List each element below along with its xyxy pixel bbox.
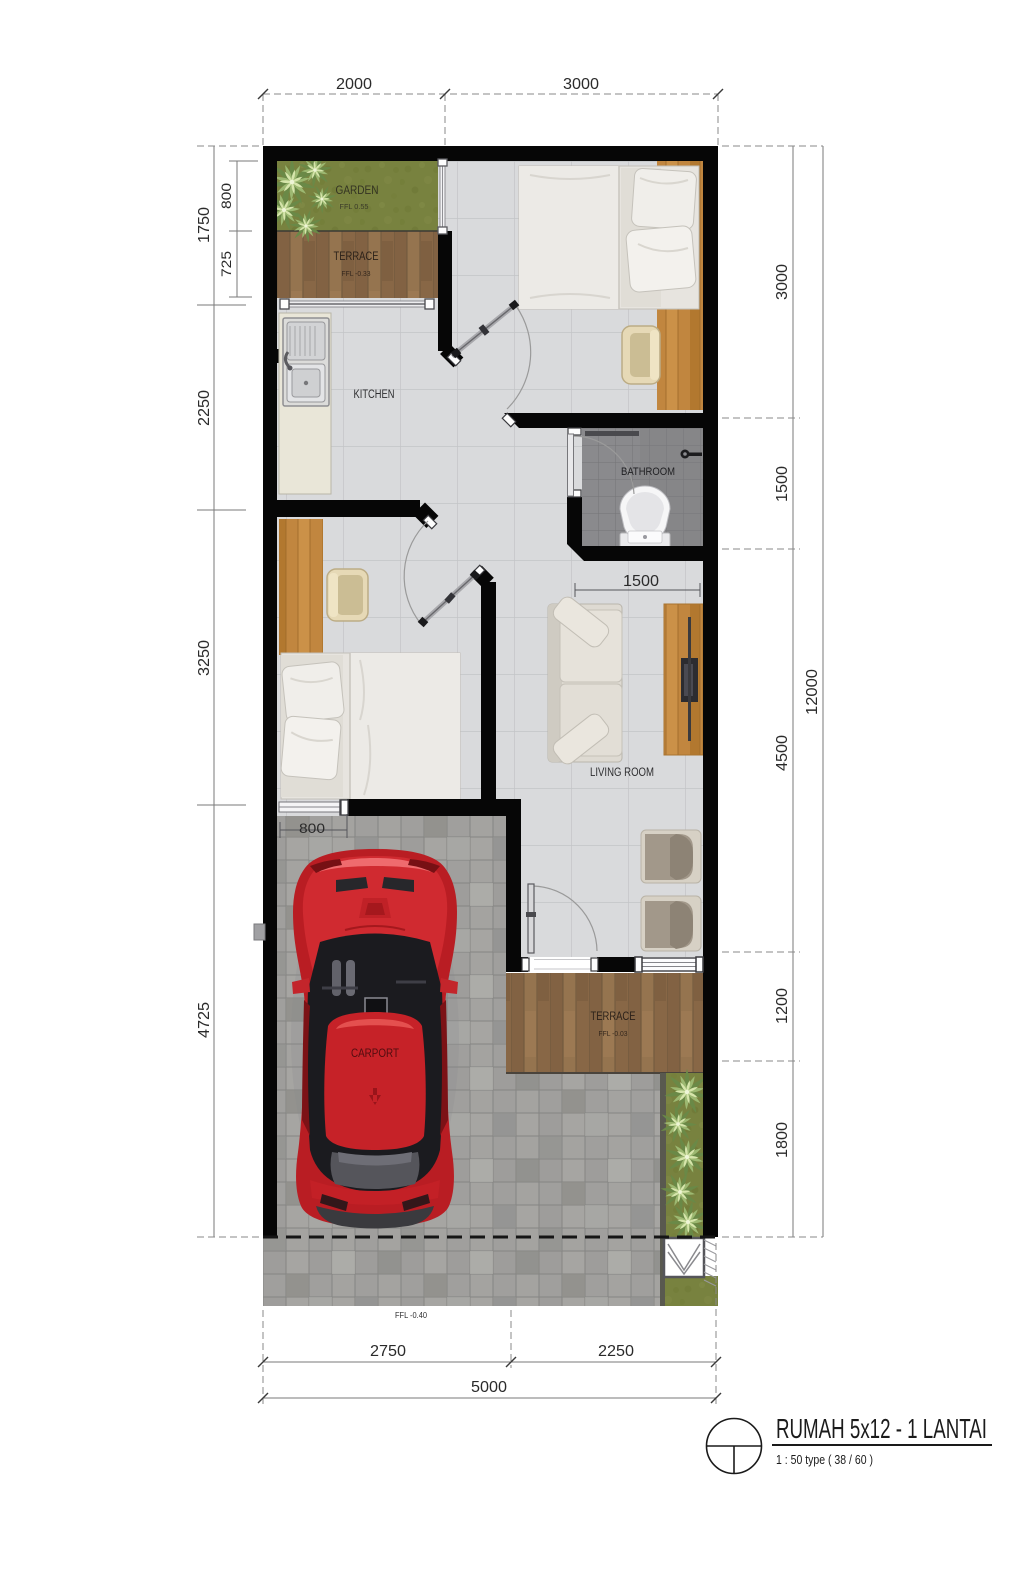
svg-text:2250: 2250 [598, 1343, 634, 1360]
svg-text:FFL -0.33: FFL -0.33 [342, 269, 371, 278]
svg-text:1800: 1800 [774, 1122, 791, 1158]
svg-text:4725: 4725 [196, 1002, 213, 1038]
svg-text:3000: 3000 [774, 264, 791, 300]
svg-text:5000: 5000 [471, 1379, 507, 1396]
svg-text:FFL -0.03: FFL -0.03 [599, 1029, 628, 1038]
svg-text:1200: 1200 [774, 988, 791, 1024]
svg-text:1750: 1750 [196, 207, 213, 243]
svg-text:FFL -0.40: FFL -0.40 [395, 1311, 428, 1320]
svg-text:2000: 2000 [336, 76, 372, 93]
svg-text:LIVING ROOM: LIVING ROOM [590, 767, 654, 779]
svg-text:CARPORT: CARPORT [351, 1048, 399, 1060]
svg-text:2750: 2750 [370, 1343, 406, 1360]
svg-text:3000: 3000 [563, 76, 599, 93]
svg-text:725: 725 [218, 251, 234, 277]
svg-text:GARDEN: GARDEN [336, 185, 379, 197]
svg-text:BATHROOM: BATHROOM [621, 466, 675, 478]
svg-text:FFL 0.55: FFL 0.55 [340, 202, 369, 211]
svg-text:1 : 50 type ( 38 / 60 ): 1 : 50 type ( 38 / 60 ) [776, 1452, 873, 1467]
svg-text:KITCHEN: KITCHEN [354, 389, 395, 401]
svg-text:1500: 1500 [623, 573, 659, 590]
svg-text:800: 800 [299, 820, 325, 836]
svg-text:3250: 3250 [196, 640, 213, 676]
svg-text:800: 800 [218, 183, 234, 209]
svg-text:2250: 2250 [196, 390, 213, 426]
svg-text:RUMAH 5x12 - 1 LANTAI: RUMAH 5x12 - 1 LANTAI [776, 1413, 987, 1444]
svg-text:TERRACE: TERRACE [591, 1011, 636, 1023]
svg-text:1500: 1500 [774, 466, 791, 502]
svg-text:12000: 12000 [804, 669, 821, 715]
svg-text:4500: 4500 [774, 735, 791, 771]
svg-text:TERRACE: TERRACE [334, 251, 379, 263]
